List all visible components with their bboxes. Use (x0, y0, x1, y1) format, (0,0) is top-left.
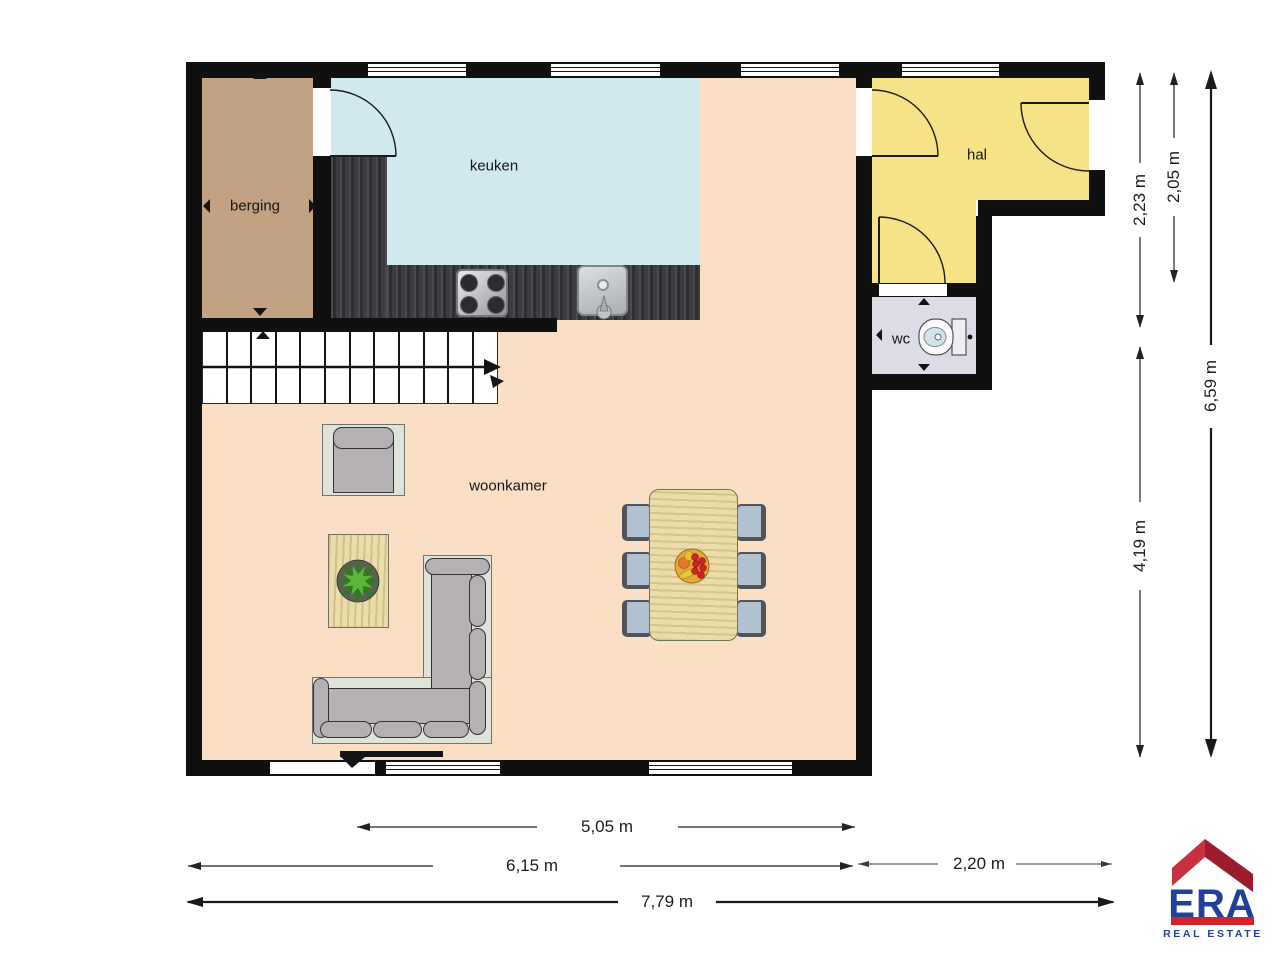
toilet-icon (919, 319, 972, 355)
span-marker-icons-berging (203, 71, 316, 316)
dimension-label-6-59: 6,59 m (1201, 360, 1221, 412)
door-berging-icon (330, 90, 396, 156)
dimension-label-2-05: 2,05 m (1164, 151, 1184, 203)
dimension-label-6-15: 6,15 m (506, 856, 558, 876)
fruit-bowl-icon (675, 549, 709, 583)
room-label-hal: hal (967, 147, 987, 164)
door-hal-icon (872, 90, 938, 156)
floorplan-canvas: keuken berging hal wc woonkamer 5,05 m 6… (0, 0, 1280, 960)
room-label-wc: wc (892, 331, 910, 348)
era-tagline: REAL ESTATE (1163, 928, 1263, 940)
dimension-label-2-20: 2,20 m (953, 854, 1005, 874)
plant-icon (336, 559, 380, 603)
stairs-direction-arrow (202, 331, 504, 388)
dimension-label-2-23: 2,23 m (1130, 174, 1150, 226)
door-front-icon (1021, 103, 1089, 171)
room-label-keuken: keuken (470, 158, 518, 175)
sliding-door-icon (340, 751, 443, 768)
era-red-bar (1171, 917, 1254, 925)
room-label-berging: berging (230, 198, 280, 215)
plan-overlay (0, 0, 1280, 960)
dimension-label-5-05: 5,05 m (581, 817, 633, 837)
dimension-line-6-59 (1205, 70, 1217, 758)
door-wc-icon (879, 217, 945, 283)
room-label-woonkamer: woonkamer (469, 478, 547, 495)
dimension-label-4-19: 4,19 m (1130, 520, 1150, 572)
dimension-label-7-79: 7,79 m (641, 892, 693, 912)
faucet-icon (597, 296, 611, 319)
